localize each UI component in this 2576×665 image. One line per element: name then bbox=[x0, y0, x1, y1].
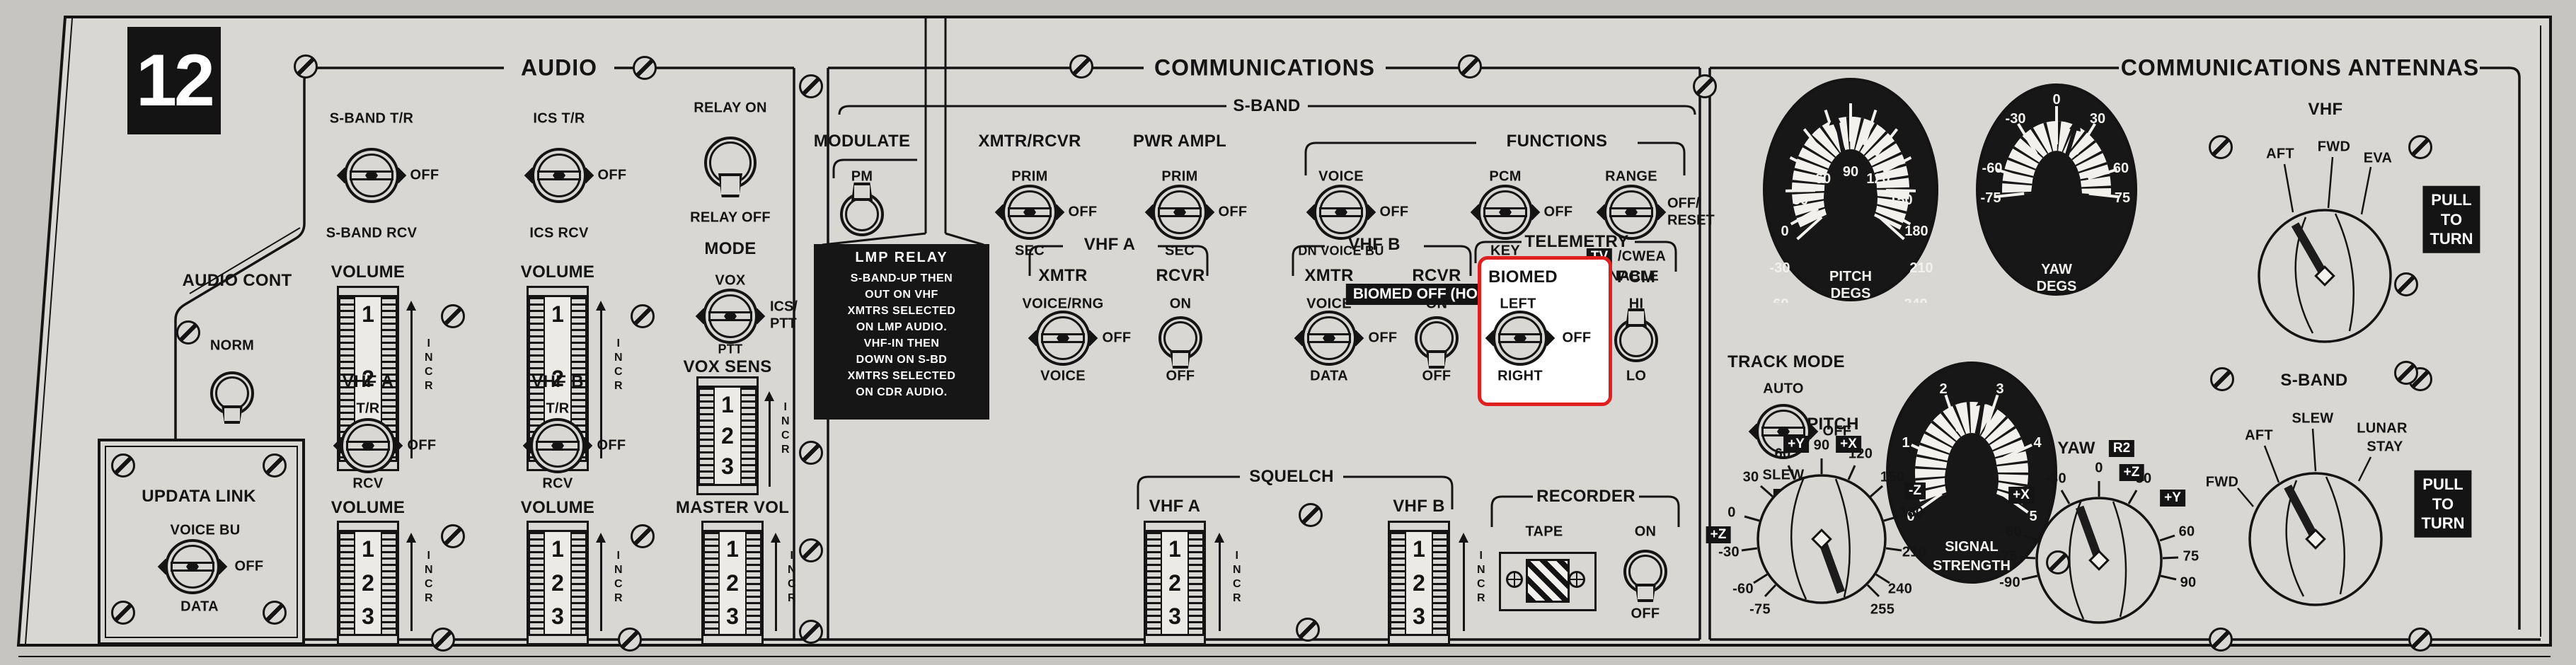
squelch-vhf-b-thumbwheel[interactable]: 1 2 3 bbox=[1388, 521, 1450, 645]
yaw-knob-m30: -30 bbox=[2045, 471, 2066, 487]
screw bbox=[799, 441, 823, 465]
audio-vhf-b-switch[interactable] bbox=[530, 418, 585, 473]
pwr-ampl-prim-label: PRIM bbox=[1161, 169, 1197, 185]
yaw-knob-60: 60 bbox=[2179, 524, 2195, 540]
ics-tr-off-label: OFF bbox=[598, 168, 627, 184]
gauge-caption: DEGS bbox=[1831, 286, 1871, 301]
vhf-a-rcvr-on-label: ON bbox=[1170, 296, 1192, 313]
panel-12: 12 AUDIO COMMUNICATIONS S-BAND COMMUNICA… bbox=[0, 0, 2576, 665]
pitch-knob-240: 240 bbox=[1888, 582, 1912, 598]
pitch-knob-py-tag: +Y bbox=[1783, 436, 1809, 453]
xmtr-rcvr-sec-label: SEC bbox=[1015, 243, 1045, 260]
squelch-vhf-a-thumbwheel[interactable]: 1 2 3 bbox=[1144, 521, 1206, 645]
master-vol-thumbwheel[interactable]: 1 2 3 bbox=[701, 521, 764, 645]
yaw-knob-m60: -60 bbox=[2001, 524, 2022, 540]
biomed-label: BIOMED bbox=[1488, 267, 1558, 287]
pitch-knob-mz-tag: -Z bbox=[1904, 482, 1926, 499]
lmp-line: XMTRS SELECTED bbox=[817, 368, 987, 384]
vox-sens-label: VOX SENS bbox=[683, 357, 771, 377]
volume-sband-incr-arrow bbox=[410, 306, 413, 458]
pitch-knob-255: 255 bbox=[1870, 602, 1894, 618]
ics-tr-label: ICS T/R bbox=[533, 111, 585, 127]
screw bbox=[294, 54, 318, 79]
vhf-a-xmtr-label: XMTR bbox=[1038, 266, 1087, 286]
vox-mode-switch[interactable] bbox=[703, 289, 758, 344]
pitch-degs-gauge: . . . . . . -75 -60 -30 0 30 60 90 120 1… bbox=[1762, 76, 1939, 303]
wheel-number: 3 bbox=[551, 603, 564, 630]
squelch-header: SQUELCH bbox=[1249, 467, 1333, 487]
audio-vhf-a-switch[interactable] bbox=[340, 418, 396, 473]
wheel-number: 2 bbox=[1168, 570, 1181, 596]
wheel-number: 3 bbox=[362, 603, 374, 630]
pitch-knob-m60: -60 bbox=[1732, 582, 1754, 598]
wheel-number: 2 bbox=[726, 570, 739, 596]
vhf-a-rcvr-label: RCVR bbox=[1156, 266, 1204, 286]
pwr-ampl-header: PWR AMPL bbox=[1133, 132, 1226, 151]
screw bbox=[431, 628, 455, 652]
screw bbox=[2394, 272, 2418, 296]
screw bbox=[799, 74, 823, 98]
gauge-tick-label: 4 bbox=[2033, 435, 2042, 451]
screw bbox=[111, 453, 135, 478]
sband-subheader: S-BAND bbox=[1233, 96, 1300, 116]
xmtr-rcvr-prim-label: PRIM bbox=[1011, 169, 1047, 185]
gauge-caption: YAW bbox=[2041, 262, 2072, 277]
wheel-number: 1 bbox=[551, 536, 564, 562]
pwr-ampl-off-label: OFF bbox=[1219, 204, 1248, 221]
sband-antenna-knob[interactable] bbox=[2240, 463, 2392, 615]
vhf-a-xmtr-voice-label: VOICE bbox=[1040, 369, 1086, 385]
audio-section-header: AUDIO bbox=[521, 55, 597, 81]
audio-cont-label: AUDIO CONT bbox=[183, 271, 292, 291]
screw bbox=[2210, 367, 2234, 391]
functions-pcm-off-label: OFF bbox=[1544, 204, 1573, 221]
screw bbox=[633, 56, 657, 80]
audio-vhf-b-off-label: OFF bbox=[597, 438, 626, 454]
sband-slew-label: SLEW bbox=[2292, 411, 2334, 427]
ptt-line: PULL bbox=[2421, 475, 2464, 495]
vhf-b-rcvr-switch[interactable] bbox=[1415, 316, 1459, 360]
screw bbox=[176, 320, 200, 345]
panel-number: 12 bbox=[136, 39, 212, 123]
sband-tr-off-label: OFF bbox=[410, 168, 439, 184]
sband-lunar-label: LUNAR bbox=[2357, 421, 2408, 437]
ptt-line: TURN bbox=[2421, 514, 2464, 533]
squelch-vhf-b-label: VHF B bbox=[1393, 497, 1445, 516]
vhf-a-rcvr-off-label: OFF bbox=[1166, 369, 1195, 385]
pitch-knob-m75: -75 bbox=[1749, 602, 1771, 618]
ics-ptt-label-1: ICS/ bbox=[770, 299, 798, 316]
screw bbox=[799, 620, 823, 644]
gauge-tick-label: 120 bbox=[1866, 171, 1890, 187]
gauge-tick-label: -30 bbox=[1770, 260, 1790, 276]
vhf-b-xmtr-off-label: OFF bbox=[1369, 330, 1398, 347]
lmp-line: VHF-IN THEN bbox=[817, 335, 987, 352]
audio-vhf-b-header: VHF B bbox=[531, 372, 584, 392]
volume-vhf-a-incr-text: INCR bbox=[425, 550, 433, 604]
recorder-on-label: ON bbox=[1635, 524, 1657, 540]
vhf-b-rcvr-off-label: OFF bbox=[1422, 369, 1451, 385]
pitch-knob-30: 30 bbox=[1743, 470, 1759, 486]
audio-vhf-a-off-label: OFF bbox=[408, 438, 437, 454]
vhf-antenna-label: VHF bbox=[2308, 100, 2343, 120]
yaw-knob-label: YAW bbox=[2057, 439, 2095, 458]
gauge-tick-label: -60 bbox=[1982, 161, 2003, 176]
wheel-number: 3 bbox=[726, 603, 739, 630]
vhf-pull-to-turn-tag: PULL TO TURN bbox=[2422, 186, 2480, 253]
pitch-knob-90: 90 bbox=[1814, 438, 1830, 454]
screw bbox=[2394, 361, 2418, 385]
gauge-tick-label: -30 bbox=[2006, 111, 2026, 127]
gauge-tick-label: 2 bbox=[1939, 381, 1947, 397]
volume-vhf-b-incr-text: INCR bbox=[614, 550, 623, 604]
pitch-knob-m30: -30 bbox=[1718, 545, 1740, 561]
vhf-b-xmtr-switch[interactable] bbox=[1301, 311, 1357, 366]
pitch-knob-210: 210 bbox=[1902, 545, 1926, 561]
functions-voice-switch[interactable] bbox=[1313, 185, 1369, 240]
relay-off-label: RELAY OFF bbox=[690, 210, 771, 226]
panel-number-badge: 12 bbox=[127, 27, 221, 134]
yaw-knob-0: 0 bbox=[2095, 461, 2103, 477]
lmp-line: DOWN ON S-BD bbox=[817, 352, 987, 368]
vhf-b-xmtr-label: XMTR bbox=[1304, 266, 1353, 286]
wheel-number: 1 bbox=[1168, 536, 1181, 562]
volume-ics-incr-text: INCR bbox=[614, 338, 623, 392]
ics-ptt-label-2: PTT bbox=[770, 316, 797, 332]
gauge-tick-label: 1 bbox=[1902, 435, 1909, 451]
vhf-a-xmtr-switch[interactable] bbox=[1035, 311, 1091, 366]
sband-rcv-label: S-BAND RCV bbox=[326, 226, 418, 242]
mode-label: MODE bbox=[704, 239, 756, 259]
pwr-ampl-sec-label: SEC bbox=[1165, 243, 1195, 260]
sband-fwd-label: FWD bbox=[2206, 475, 2238, 491]
xmtr-rcvr-off-label: OFF bbox=[1069, 204, 1098, 221]
audio-cont-switch[interactable] bbox=[210, 371, 254, 415]
volume-ics-incr-arrow bbox=[600, 306, 602, 458]
lmp-line: ON CDR AUDIO. bbox=[817, 384, 987, 400]
yaw-knob-75: 75 bbox=[2183, 549, 2200, 565]
screw bbox=[111, 601, 135, 625]
gauge-tick-label: 240 bbox=[1904, 296, 1927, 303]
wheel-number: 1 bbox=[721, 392, 734, 418]
telemetry-header: TELEMETRY bbox=[1524, 232, 1628, 252]
ptt-line: TO bbox=[2421, 494, 2464, 514]
gauge-caption: DEGS bbox=[2037, 279, 2077, 294]
range-off-reset-label-2: RESET bbox=[1667, 213, 1715, 229]
sband-antenna-label: S-BAND bbox=[2280, 371, 2347, 391]
relay-switch[interactable] bbox=[704, 137, 757, 189]
gauge-tick-label: 0 bbox=[2052, 92, 2060, 108]
gauge-tick-label: 30 bbox=[1793, 192, 1808, 208]
lmp-line: XMTRS SELECTED bbox=[817, 303, 987, 319]
screw bbox=[1299, 503, 1323, 527]
audio-vhf-a-tr-label: T/R bbox=[356, 401, 379, 417]
gauge-caption: PITCH bbox=[1829, 269, 1872, 284]
ics-tr-switch[interactable] bbox=[531, 148, 587, 203]
yaw-knob-r2-tag: R2 bbox=[2109, 440, 2134, 457]
updata-off-label: OFF bbox=[235, 559, 264, 575]
vhf-b-rcvr-label: RCVR bbox=[1412, 266, 1461, 286]
screw bbox=[2209, 628, 2233, 652]
antennas-section-header: COMMUNICATIONS ANTENNAS bbox=[2121, 55, 2480, 81]
pitch-knob-px-tag: +X bbox=[1836, 436, 1861, 453]
squelch-vhf-a-label: VHF A bbox=[1149, 497, 1201, 516]
master-vol-incr-text: INCR bbox=[788, 550, 796, 604]
ptt-label: PTT bbox=[718, 342, 743, 357]
modulate-header: MODULATE bbox=[814, 132, 911, 151]
vhf-aft-label: AFT bbox=[2266, 146, 2294, 163]
volume-vhf-b-label: VOLUME bbox=[521, 498, 594, 518]
tape-screw bbox=[1568, 571, 1585, 588]
wheel-number: 1 bbox=[551, 301, 564, 328]
squelch-a-incr-text: INCR bbox=[1233, 550, 1241, 604]
wheel-number: 3 bbox=[1413, 603, 1425, 630]
screw bbox=[2408, 628, 2432, 652]
screw bbox=[1069, 54, 1093, 79]
lmp-line: OUT ON VHF bbox=[817, 287, 987, 303]
volume-vhf-b-thumbwheel[interactable]: 1 2 3 bbox=[527, 521, 589, 645]
ptt-line: PULL bbox=[2430, 190, 2473, 210]
wheel-number: 2 bbox=[1413, 570, 1425, 596]
comm-vhf-a-header: VHF A bbox=[1084, 235, 1136, 255]
volume-ics-label: VOLUME bbox=[521, 262, 594, 282]
xmtr-rcvr-switch[interactable] bbox=[1002, 185, 1057, 240]
modulate-switch[interactable] bbox=[840, 192, 884, 236]
relay-on-label: RELAY ON bbox=[694, 100, 767, 117]
wheel-number: 3 bbox=[1168, 603, 1181, 630]
vox-sens-incr-arrow bbox=[769, 396, 771, 487]
functions-header: FUNCTIONS bbox=[1507, 132, 1608, 151]
audio-cont-norm-label: NORM bbox=[210, 338, 254, 354]
sband-tr-switch[interactable] bbox=[344, 148, 399, 203]
sband-pull-to-turn-tag: PULL TO TURN bbox=[2414, 470, 2471, 538]
wheel-number: 1 bbox=[362, 301, 374, 328]
recorder-tape-label: TAPE bbox=[1525, 524, 1563, 540]
functions-voice-off-label: OFF bbox=[1380, 204, 1409, 221]
functions-range-label: RANGE bbox=[1605, 169, 1657, 185]
yaw-knob-m90: -90 bbox=[1999, 575, 2020, 591]
screw bbox=[2209, 135, 2233, 159]
audio-vhf-a-rcv-label: RCV bbox=[352, 476, 383, 492]
squelch-a-incr-arrow bbox=[1219, 538, 1221, 631]
screw bbox=[441, 304, 465, 328]
volume-sband-incr-text: INCR bbox=[425, 338, 433, 392]
screw bbox=[631, 304, 655, 328]
updata-link-title: UPDATA LINK bbox=[142, 487, 256, 507]
xmtr-rcvr-header: XMTR/RCVR bbox=[978, 132, 1081, 151]
screw bbox=[631, 524, 655, 548]
yaw-knob[interactable] bbox=[2014, 475, 2184, 645]
screw bbox=[263, 453, 287, 478]
track-mode-header: TRACK MODE bbox=[1727, 352, 1845, 372]
vhf-fwd-label: FWD bbox=[2318, 139, 2350, 156]
gauge-tick-label: 90 bbox=[1843, 164, 1858, 180]
vhf-b-rcvr-on-label: ON bbox=[1426, 296, 1448, 313]
vox-sens-thumbwheel[interactable]: 1 2 3 bbox=[696, 376, 759, 495]
wheel-number: 1 bbox=[1413, 536, 1425, 562]
track-mode-auto-label: AUTO bbox=[1763, 381, 1804, 398]
updata-voice-bu-label: VOICE BU bbox=[170, 523, 240, 539]
screw bbox=[799, 538, 823, 562]
wheel-number: 1 bbox=[362, 536, 374, 562]
gauge-tick-label: 60 bbox=[1815, 171, 1831, 187]
screw bbox=[1296, 618, 1320, 642]
volume-vhf-a-incr-arrow bbox=[410, 538, 413, 631]
yaw-degs-gauge: 0 30 -30 60 -60 75 -75 YAW DEGS bbox=[1975, 83, 2138, 296]
lmp-line: ON LMP AUDIO. bbox=[817, 319, 987, 335]
recorder-switch[interactable] bbox=[1623, 550, 1667, 594]
recorder-header: RECORDER bbox=[1536, 487, 1635, 507]
squelch-b-incr-text: INCR bbox=[1477, 550, 1485, 604]
functions-voice-label: VOICE bbox=[1318, 169, 1364, 185]
sband-aft-label: AFT bbox=[2245, 428, 2273, 444]
wheel-number: 2 bbox=[721, 423, 734, 449]
telemetry-pcm-switch[interactable] bbox=[1614, 318, 1658, 362]
vhf-b-xmtr-data-label: DATA bbox=[1310, 369, 1348, 385]
vhf-antenna-knob[interactable] bbox=[2250, 202, 2399, 350]
pitch-knob-label: PITCH bbox=[1807, 415, 1859, 434]
audio-vhf-b-rcv-label: RCV bbox=[542, 476, 573, 492]
updata-link-switch[interactable] bbox=[165, 539, 220, 594]
screw bbox=[1693, 74, 1717, 98]
wheel-number: 2 bbox=[362, 570, 374, 596]
gauge-tick-label: -60 bbox=[1769, 296, 1789, 303]
pitch-knob-150: 150 bbox=[1880, 470, 1904, 486]
ics-rcv-label: ICS RCV bbox=[529, 226, 588, 242]
biomed-right-label: RIGHT bbox=[1497, 369, 1543, 385]
updata-data-label: DATA bbox=[180, 599, 219, 615]
screw bbox=[263, 601, 287, 625]
lmp-relay-title: LMP RELAY bbox=[817, 250, 987, 266]
telemetry-pcm-label: PCM bbox=[1617, 267, 1655, 287]
vhf-a-rcvr-switch[interactable] bbox=[1158, 316, 1202, 360]
yaw-knob-py-tag: +Y bbox=[2160, 490, 2185, 507]
audio-vhf-a-header: VHF A bbox=[343, 372, 394, 392]
communications-section-header: COMMUNICATIONS bbox=[1154, 55, 1375, 81]
screw bbox=[441, 524, 465, 548]
ptt-line: TO bbox=[2430, 209, 2473, 229]
vox-label: VOX bbox=[715, 273, 745, 289]
range-off-reset-label-1: OFF/ bbox=[1667, 196, 1700, 212]
yaw-knob-m75: -75 bbox=[1996, 549, 2018, 565]
lmp-line: S-BAND-UP THEN bbox=[817, 270, 987, 287]
pitch-knob-pz-tag: +Z bbox=[1706, 526, 1731, 543]
volume-vhf-b-incr-arrow bbox=[600, 538, 602, 631]
gauge-tick-label: 60 bbox=[2113, 161, 2129, 176]
yaw-knob-90: 90 bbox=[2180, 575, 2197, 591]
gauge-tick-label: 210 bbox=[1909, 260, 1933, 276]
pcm-lo-label: LO bbox=[1626, 369, 1646, 385]
tape-screw bbox=[1506, 571, 1523, 588]
functions-pcm-label: PCM bbox=[1489, 169, 1521, 185]
gauge-tick-label: 0 bbox=[1781, 224, 1788, 239]
master-vol-label: MASTER VOL bbox=[676, 498, 789, 518]
wheel-number: 2 bbox=[551, 570, 564, 596]
gauge-tick-label: 75 bbox=[2115, 190, 2130, 206]
wheel-number: 3 bbox=[721, 453, 734, 480]
sband-stay-label: STAY bbox=[2367, 439, 2403, 456]
biomed-off-label: OFF bbox=[1563, 330, 1592, 347]
volume-vhf-a-thumbwheel[interactable]: 1 2 3 bbox=[337, 521, 399, 645]
gauge-tick-label: 180 bbox=[1904, 224, 1928, 239]
screw bbox=[1458, 54, 1482, 79]
volume-vhf-a-label: VOLUME bbox=[331, 498, 405, 518]
wheel-number: 1 bbox=[726, 536, 739, 562]
tape-stripe-flag bbox=[1526, 559, 1570, 603]
recorder-off-label: OFF bbox=[1631, 606, 1660, 623]
squelch-b-incr-arrow bbox=[1463, 538, 1465, 631]
pitch-knob-0: 0 bbox=[1727, 505, 1735, 521]
gauge-tick-label: -75 bbox=[1981, 190, 2001, 206]
gauge-caption: SIGNAL bbox=[1945, 539, 1999, 555]
gauge-tick-label: 3 bbox=[1996, 381, 2003, 397]
vox-sens-incr-text: INCR bbox=[781, 402, 790, 456]
audio-vhf-b-tr-label: T/R bbox=[546, 401, 569, 417]
lmp-relay-placard: LMP RELAY S-BAND-UP THEN OUT ON VHF XMTR… bbox=[814, 244, 989, 420]
pitch-knob-180: 180 bbox=[1899, 505, 1924, 521]
sband-tr-label: S-BAND T/R bbox=[330, 111, 414, 127]
biomed-switch[interactable] bbox=[1493, 311, 1548, 366]
yaw-knob-px-tag: +X bbox=[2008, 487, 2034, 504]
pwr-ampl-switch[interactable] bbox=[1152, 185, 1207, 240]
master-vol-incr-arrow bbox=[775, 538, 777, 631]
screw bbox=[2046, 550, 2070, 574]
comm-vhf-b-header: VHF B bbox=[1348, 235, 1401, 255]
gauge-tick-label: 150 bbox=[1889, 192, 1912, 208]
vhf-eva-label: EVA bbox=[2364, 151, 2393, 167]
screw bbox=[2408, 135, 2432, 159]
screw bbox=[618, 628, 642, 652]
gauge-tick-label: 30 bbox=[2090, 111, 2105, 127]
ptt-line: TURN bbox=[2430, 229, 2473, 249]
yaw-knob-pz-tag: +Z bbox=[2120, 464, 2144, 481]
vhf-a-xmtr-off-label: OFF bbox=[1103, 330, 1132, 347]
volume-sband-label: VOLUME bbox=[331, 262, 405, 282]
